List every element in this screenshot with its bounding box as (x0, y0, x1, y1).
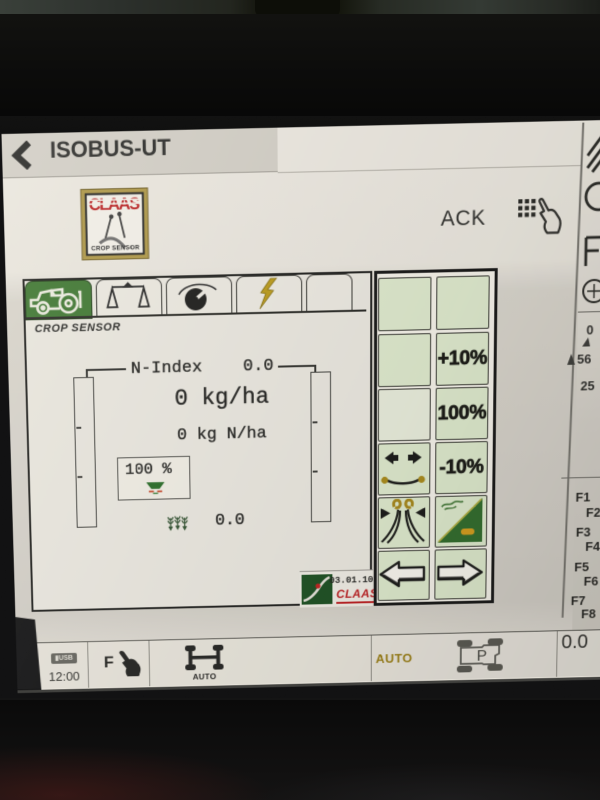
svg-text:P: P (477, 647, 487, 664)
svg-text:AUTO: AUTO (193, 672, 217, 682)
svg-text:CROP SENSOR: CROP SENSOR (91, 244, 140, 252)
